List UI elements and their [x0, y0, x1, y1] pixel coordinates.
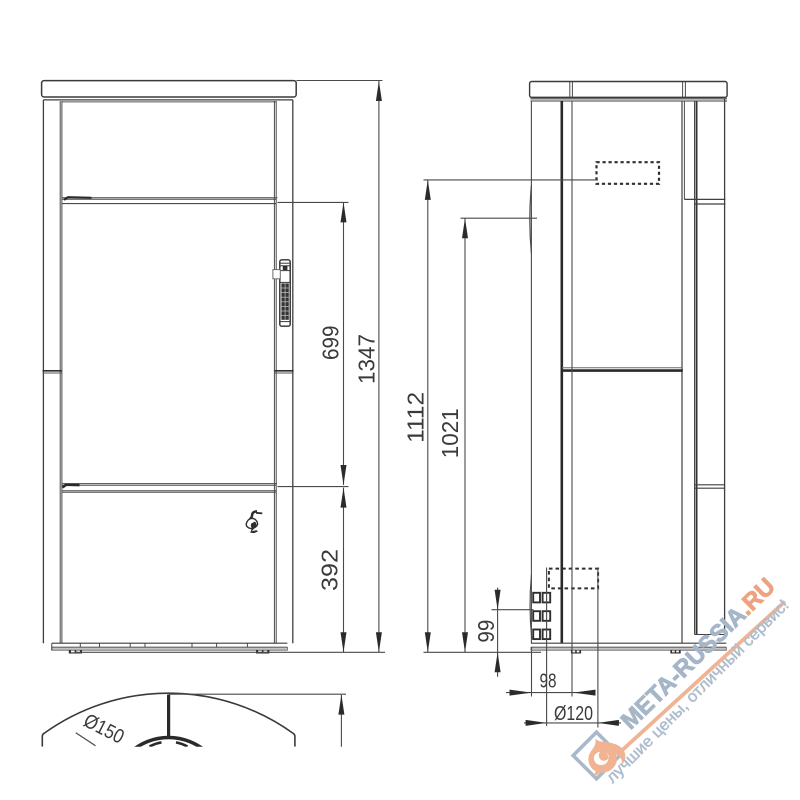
svg-text:1347: 1347: [354, 334, 380, 384]
svg-text:98: 98: [540, 671, 557, 693]
svg-text:1112: 1112: [403, 392, 429, 443]
svg-text:МЕТА-RUSSIA.RU: МЕТА-RUSSIA.RU: [616, 573, 781, 735]
svg-text:1021: 1021: [437, 408, 463, 458]
svg-text:99: 99: [473, 620, 499, 643]
svg-text:Ø120: Ø120: [554, 703, 593, 725]
svg-text:Ø150: Ø150: [80, 710, 127, 749]
svg-text:699: 699: [318, 326, 344, 361]
svg-text:392: 392: [317, 549, 343, 591]
svg-text:лучшие цены, отличный сервис!: лучшие цены, отличный сервис!: [603, 597, 792, 787]
